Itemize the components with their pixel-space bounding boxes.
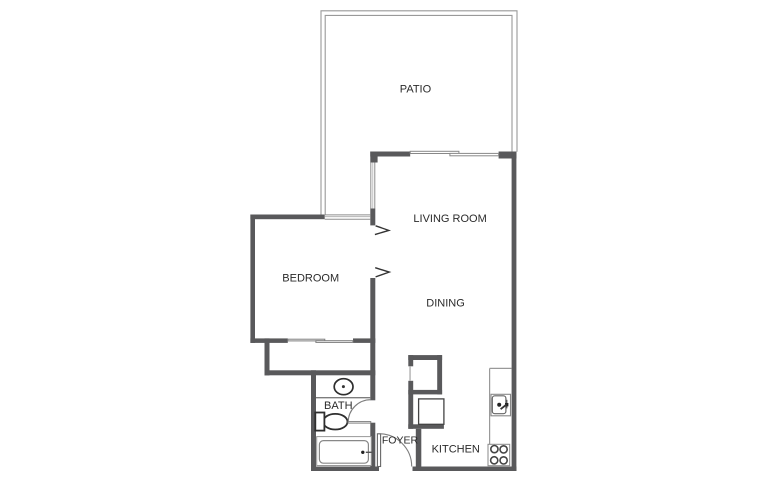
svg-text:BATH: BATH bbox=[324, 400, 353, 412]
svg-text:PATIO: PATIO bbox=[400, 84, 432, 96]
svg-text:BEDROOM: BEDROOM bbox=[282, 272, 339, 284]
svg-text:DINING: DINING bbox=[426, 298, 465, 310]
svg-text:FOYER: FOYER bbox=[382, 435, 419, 447]
svg-text:KITCHEN: KITCHEN bbox=[432, 444, 480, 456]
svg-text:LIVING ROOM: LIVING ROOM bbox=[413, 213, 486, 225]
